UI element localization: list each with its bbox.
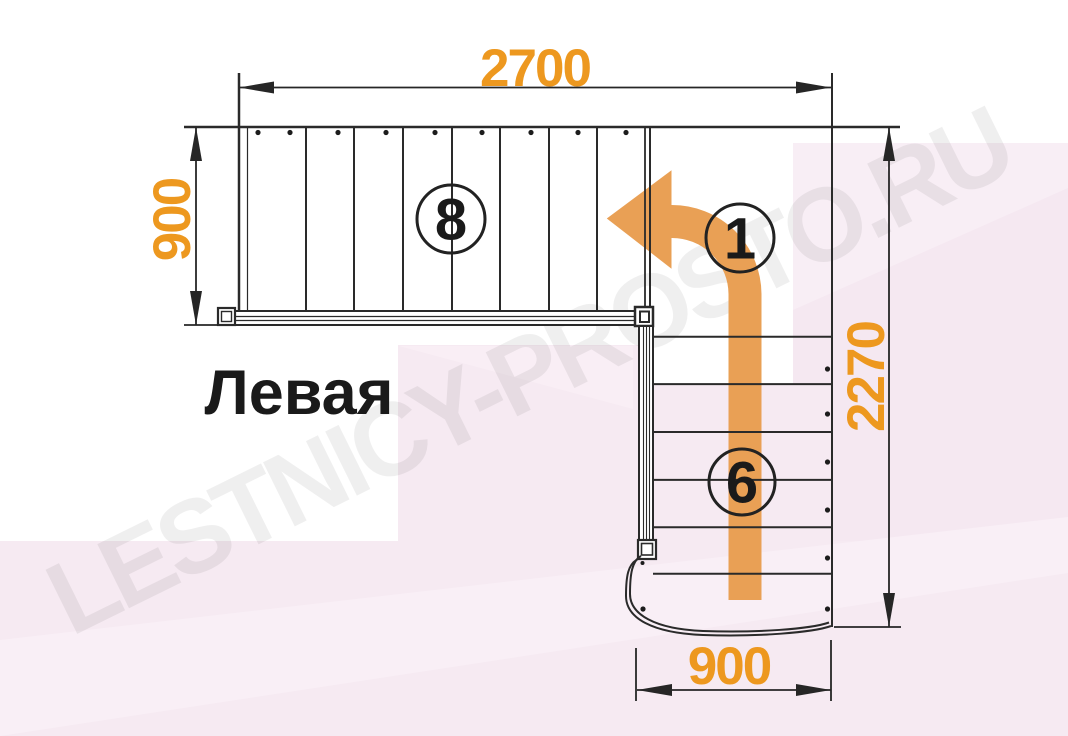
svg-text:Левая: Левая [205,358,394,428]
svg-text:6: 6 [726,451,758,516]
svg-text:900: 900 [143,178,202,261]
svg-text:1: 1 [724,207,756,272]
svg-text:8: 8 [435,188,467,253]
svg-text:2700: 2700 [480,39,590,98]
svg-text:2270: 2270 [837,322,896,432]
svg-text:900: 900 [688,637,771,696]
